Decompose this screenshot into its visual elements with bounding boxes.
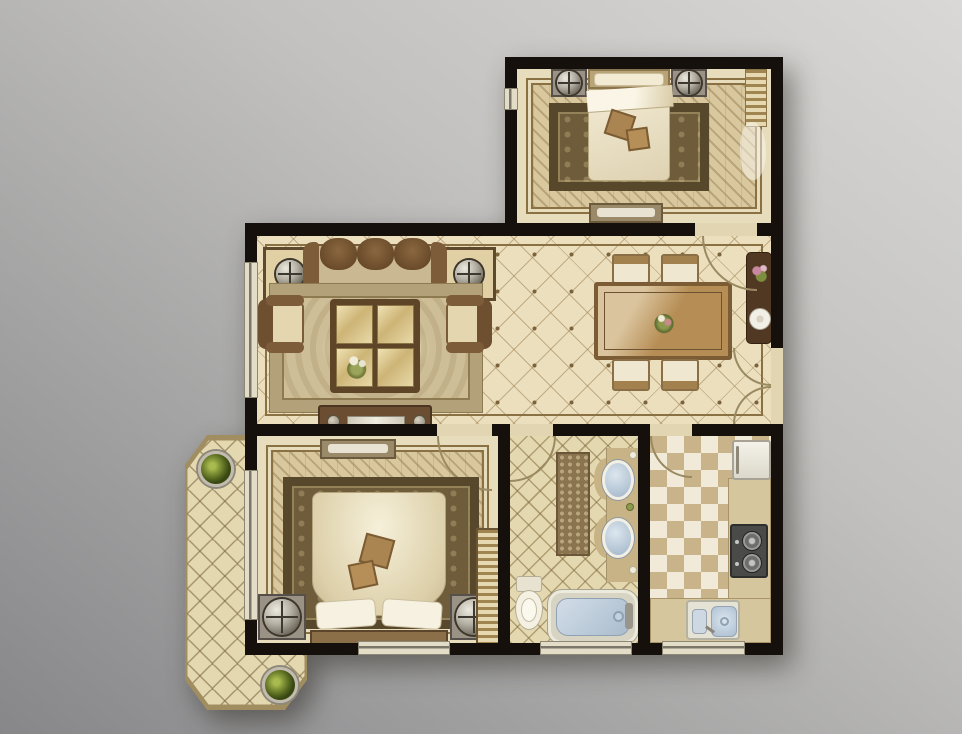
wall-living-left-lower: [245, 398, 257, 424]
second-bedroom-bed: [588, 69, 670, 181]
bathroom-door-threshold: [510, 424, 553, 436]
wall-master-bottom-1: [245, 643, 358, 655]
entry-threshold: [771, 348, 783, 424]
toilet-seat: [521, 598, 537, 622]
wall-living-bottom-2: [492, 424, 510, 436]
bed-pillow: [594, 73, 664, 86]
sofa-cushion-2: [357, 238, 394, 270]
wall-master-right: [498, 436, 510, 655]
master-wardrobe-strip: [476, 528, 500, 652]
wall-bathroom-bottom-1: [510, 643, 540, 655]
sink-basin-small: [692, 609, 707, 634]
balcony-plant-top: [198, 451, 234, 487]
sofa-armrest-left: [303, 242, 319, 290]
bed-fold: [586, 85, 673, 113]
living-left-window: [244, 262, 258, 398]
bedroom2-door-threshold: [695, 223, 757, 236]
kitchen-stove: [730, 524, 768, 578]
dining-chair-top-2: [661, 254, 699, 284]
wall-living-top-right-segment: [757, 223, 783, 236]
table-panel-4: [377, 348, 414, 387]
bed-pillow-left: [315, 598, 377, 630]
bedroom2-left-window: [504, 88, 518, 110]
wall-living-bottom-4: [692, 424, 783, 436]
wall-master-left-upper: [245, 436, 257, 470]
kitchen-refrigerator: [732, 440, 771, 480]
second-bedroom-bench: [589, 203, 663, 223]
master-left-window: [244, 470, 258, 620]
living-armchair-left: [258, 297, 308, 351]
master-bedroom-bench: [320, 439, 396, 459]
vanity-accessory-2: [626, 503, 634, 511]
stove-burner-1-icon: [742, 531, 762, 551]
master-bedroom-bed: [310, 490, 448, 648]
dining-chair-bottom-2: [661, 359, 699, 391]
second-bedroom-curtain: [745, 69, 767, 127]
stove-knob-2: [735, 562, 739, 566]
second-bedroom-lamp-right-icon: [677, 71, 701, 95]
wall-kitchen-bottom-1: [650, 643, 662, 655]
armchair-arm-bottom: [446, 342, 484, 353]
bed-deco-pillow-2: [348, 560, 379, 591]
wall-living-bottom-3: [553, 424, 650, 436]
master-bedroom-door-threshold: [437, 424, 492, 436]
bathroom-bathtub: [548, 590, 638, 644]
stove-burner-2-icon: [742, 553, 762, 573]
bench-cushion: [328, 444, 388, 453]
dining-centerpiece-flowers-icon: [651, 308, 677, 334]
bathtub-faucet-icon: [625, 603, 633, 629]
sofa-cushion-1: [320, 238, 357, 270]
kitchen-bottom-window: [662, 641, 745, 655]
armchair-seat: [446, 303, 480, 345]
fridge-handle: [736, 446, 739, 474]
vanity-accessory-1: [629, 451, 637, 459]
wall-bedroom2-left: [505, 57, 517, 236]
armchair-arm-top: [266, 295, 304, 306]
dining-chair-top-1: [612, 254, 650, 284]
master-bottom-window: [358, 641, 450, 655]
bathroom-runner-rug: [556, 452, 590, 556]
wall-kitchen-right: [771, 424, 783, 655]
balcony-plant-bottom: [262, 667, 298, 703]
wall-bathroom-right: [638, 436, 650, 655]
wall-bathroom-bottom-2: [632, 643, 650, 655]
bathroom-toilet: [514, 576, 544, 632]
wall-master-bottom-2: [450, 643, 510, 655]
bathroom-sink-bottom: [602, 518, 634, 558]
armchair-seat: [270, 303, 304, 345]
bathroom-bottom-window: [540, 641, 632, 655]
master-lamp-left-icon: [264, 599, 300, 635]
bathtub-drain-icon: [613, 611, 624, 622]
table-panel-2: [377, 305, 414, 344]
living-coffee-table: [330, 299, 420, 393]
living-armchair-right: [442, 297, 492, 351]
wall-living-bottom-1: [245, 424, 437, 436]
bed-pillow-right: [381, 598, 443, 630]
wall-living-top-left-segment: [245, 223, 695, 236]
armchair-arm-bottom: [266, 342, 304, 353]
wall-bedroom2-top: [505, 57, 783, 69]
table-panel-1: [336, 305, 373, 344]
coffee-table-flowers-icon: [344, 351, 372, 379]
dining-table: [594, 282, 732, 360]
sofa-cushion-3: [394, 238, 431, 270]
wall-dining-right-upper: [771, 236, 783, 348]
second-bedroom-sheer-curtain: [740, 122, 766, 180]
wall-bedroom2-right: [771, 57, 783, 236]
wall-kitchen-bottom-2: [745, 643, 783, 655]
bed-deco-pillow-2: [626, 127, 651, 152]
stove-knob-1: [735, 540, 739, 544]
wall-living-left-upper: [245, 236, 257, 262]
second-bedroom-lamp-left-icon: [557, 71, 581, 95]
kitchen-door-threshold: [650, 424, 692, 436]
sink-drain-icon: [720, 617, 729, 626]
sink-basin-large: [711, 606, 737, 637]
floor-plan-scene: [0, 0, 962, 734]
sideboard-plate-icon: [749, 308, 771, 330]
armchair-arm-top: [446, 295, 484, 306]
kitchen-sink: [686, 600, 740, 640]
bathroom-sink-top: [602, 460, 634, 500]
sofa-armrest-right: [431, 242, 447, 290]
dining-chair-bottom-1: [612, 359, 650, 391]
vanity-accessory-3: [629, 566, 637, 574]
bench-cushion: [597, 208, 655, 217]
